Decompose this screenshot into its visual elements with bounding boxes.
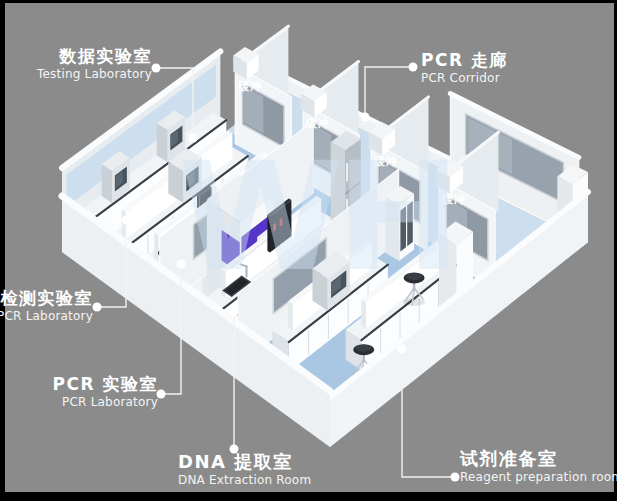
buffer-room-label: 缓冲 [373,155,398,168]
callout-testing-lab-zh: 数据实验室 [37,47,152,67]
callout-dna-extraction-zh: DNA 提取室 [178,452,311,473]
island-bench-shelf-side [154,233,158,262]
drying-rack-side [267,215,270,253]
callout-pcr-corridor-zh: PCR 走廊 [421,51,508,71]
cabinet-glass-door [407,201,413,246]
connector-dot [122,216,131,225]
stool-seat-top [356,345,372,352]
callout-pcr-corridor: PCR 走廊 PCR Corridor [421,51,508,85]
connector-dot [189,134,198,143]
connector-dot [451,473,460,482]
callout-pcr-lab: PCR 实验室 PCR Laboratory [53,375,158,409]
sink-bench-shelf-side [221,269,225,298]
callout-dna-extraction: DNA 提取室 DNA Extraction Room [178,452,311,487]
callout-pcr-lab-en: PCR Laboratory [53,396,158,410]
connector-dot [361,113,370,122]
cabinet-glass-door [400,206,406,251]
analyzer-side [157,123,168,162]
callout-detection-lab-zh: 检测实验室 [0,289,93,309]
buffer-room-label: 缓冲 [441,193,466,206]
connector-dot [398,345,407,354]
island-bench-shelf-side [361,300,366,329]
callout-reagent-prep: 试剂准备室 Reagent preparation room [460,449,617,484]
callout-testing-lab-en: Testing Laboratory [37,68,152,82]
callout-reagent-prep-zh: 试剂准备室 [460,449,617,470]
connector-dot [409,63,418,72]
connector-dot [230,308,239,317]
callout-reagent-prep-en: Reagent preparation room [460,471,617,485]
callout-pcr-corridor-en: PCR Corridor [421,72,508,86]
island-bench-shelf-side [288,301,292,330]
callout-detection-lab: 检测实验室 PCR Laboratory [0,289,93,323]
callout-detection-lab-en: PCR Laboratory [0,310,93,324]
callout-dna-extraction-en: DNA Extraction Room [178,474,311,488]
buffer-room-label: 缓冲 [305,117,330,130]
callout-pcr-lab-zh: PCR 实验室 [53,375,158,395]
connector-dot [177,260,186,269]
connector-line-pcr-corridor [365,67,413,117]
callout-testing-lab: 数据实验室 Testing Laboratory [37,47,152,81]
stool-seat-top [406,273,422,280]
buffer-room-label: 缓冲 [237,80,262,93]
storage-cabinet-side [386,197,400,261]
connector-dot [152,64,161,73]
connector-dot [93,303,102,312]
